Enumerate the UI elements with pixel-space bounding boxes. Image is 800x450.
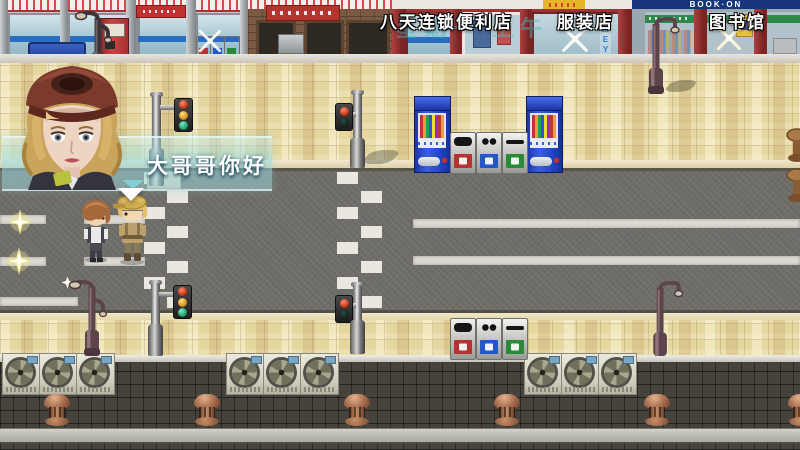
ac-unit bbox=[2, 353, 41, 395]
vending-machine[interactable] bbox=[526, 96, 563, 173]
ac-unit bbox=[300, 353, 339, 395]
roof-vent bbox=[644, 394, 670, 434]
lane-marking bbox=[413, 219, 800, 228]
traffic-light bbox=[174, 98, 193, 132]
lane-marking bbox=[0, 297, 78, 306]
shop-door[interactable] bbox=[136, 13, 190, 60]
wall-pillar bbox=[186, 0, 196, 57]
red-pillar bbox=[694, 9, 707, 57]
recycle-bin-pet bbox=[476, 132, 502, 174]
recycle-bin-cans bbox=[450, 132, 476, 174]
street-lamp bbox=[638, 16, 682, 96]
ac-unit bbox=[226, 353, 265, 395]
roof-vent bbox=[494, 394, 520, 434]
roof-vent bbox=[194, 394, 220, 434]
street-lamp bbox=[642, 280, 686, 358]
metal-counter bbox=[278, 34, 304, 54]
shop-window bbox=[304, 20, 344, 58]
location-label-clothing: 服装店 bbox=[557, 8, 614, 33]
ac-unit bbox=[561, 353, 600, 395]
ac-unit bbox=[76, 353, 115, 395]
location-label-library: 图书馆 bbox=[709, 8, 766, 33]
pedestrian-signal bbox=[335, 103, 353, 131]
npc-sprite-blonde-cap[interactable] bbox=[113, 193, 152, 265]
library-window bbox=[767, 12, 800, 57]
door-sign bbox=[136, 5, 186, 18]
roof-vent bbox=[344, 394, 370, 434]
recycle-bin-other bbox=[502, 132, 528, 174]
ac-unit bbox=[263, 353, 302, 395]
traffic-light bbox=[173, 285, 192, 319]
shop-counter bbox=[773, 38, 797, 54]
pedestrian-signal bbox=[335, 295, 353, 323]
traffic-light-pole bbox=[151, 283, 160, 329]
roof-vent bbox=[44, 394, 70, 434]
vending-machine[interactable] bbox=[414, 96, 451, 173]
recycle-bin-cans bbox=[450, 318, 476, 360]
lane-marking bbox=[413, 256, 800, 265]
pole-base bbox=[148, 324, 163, 356]
window-sparkle bbox=[196, 28, 224, 54]
sparkle bbox=[3, 247, 35, 275]
roof-vent bbox=[788, 394, 800, 434]
wooden-stool bbox=[786, 168, 800, 204]
roof-ledge bbox=[0, 428, 800, 444]
red-banner-sign bbox=[266, 5, 340, 21]
wall-pillar bbox=[240, 0, 248, 57]
location-label-convenience: 八天连锁便利店 bbox=[380, 8, 513, 33]
dialogue-portrait bbox=[10, 53, 134, 190]
continue-arrow-icon[interactable] bbox=[118, 188, 144, 201]
recycle-bin-other bbox=[502, 318, 528, 360]
pole-base bbox=[350, 138, 365, 168]
red-pillar bbox=[618, 9, 632, 57]
pole-base bbox=[350, 320, 365, 354]
ac-unit bbox=[39, 353, 78, 395]
recycle-bin-pet bbox=[476, 318, 502, 360]
street-lamp bbox=[68, 278, 116, 358]
dialogue-text: 大哥哥你好 bbox=[147, 150, 267, 180]
game-scene: BOOK·ON OMEYA bbox=[0, 0, 800, 450]
npc-sprite-brown-hair[interactable] bbox=[78, 197, 114, 263]
ac-unit bbox=[524, 353, 563, 395]
wooden-stool bbox=[786, 128, 800, 164]
wall-pillar bbox=[0, 0, 8, 57]
sparkle bbox=[5, 209, 35, 235]
ac-unit bbox=[598, 353, 637, 395]
